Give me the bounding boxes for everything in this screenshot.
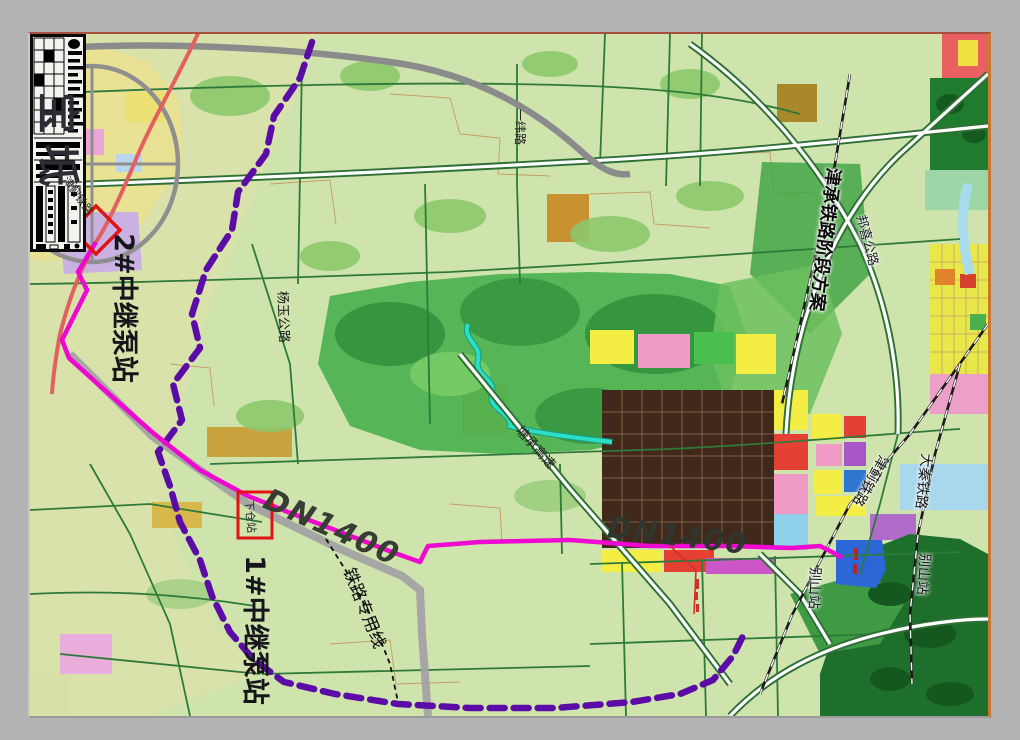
image-frame: 宝坻 2#中继泵站 1#中继泵站 DN1400 DN1400 铁路专用线 津承铁… [0, 0, 1020, 740]
planning-map: 宝坻 2#中继泵站 1#中继泵站 DN1400 DN1400 铁路专用线 津承铁… [28, 32, 991, 718]
map-canvas [30, 34, 988, 716]
title-block [30, 34, 86, 252]
